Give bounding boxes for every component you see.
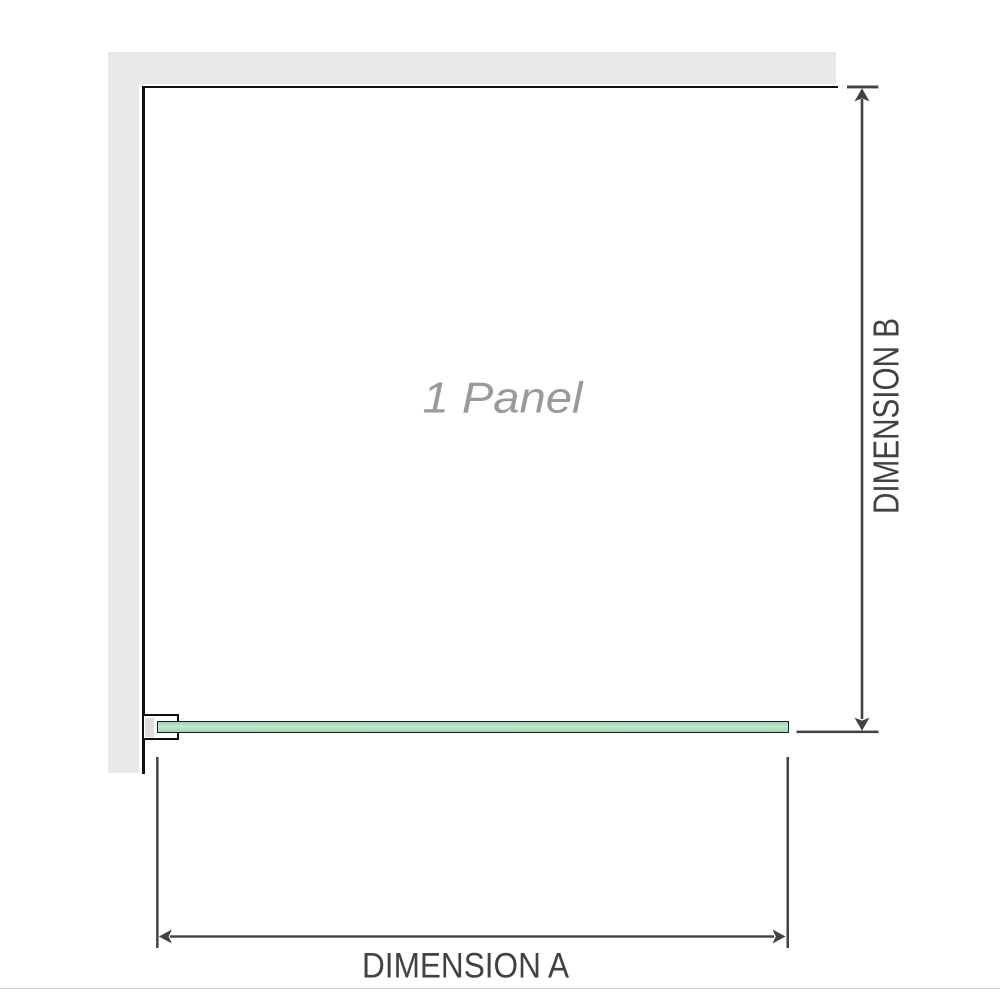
svg-text:DIMENSION A: DIMENSION A [362,946,569,986]
svg-text:DIMENSION B: DIMENSION B [865,318,906,514]
